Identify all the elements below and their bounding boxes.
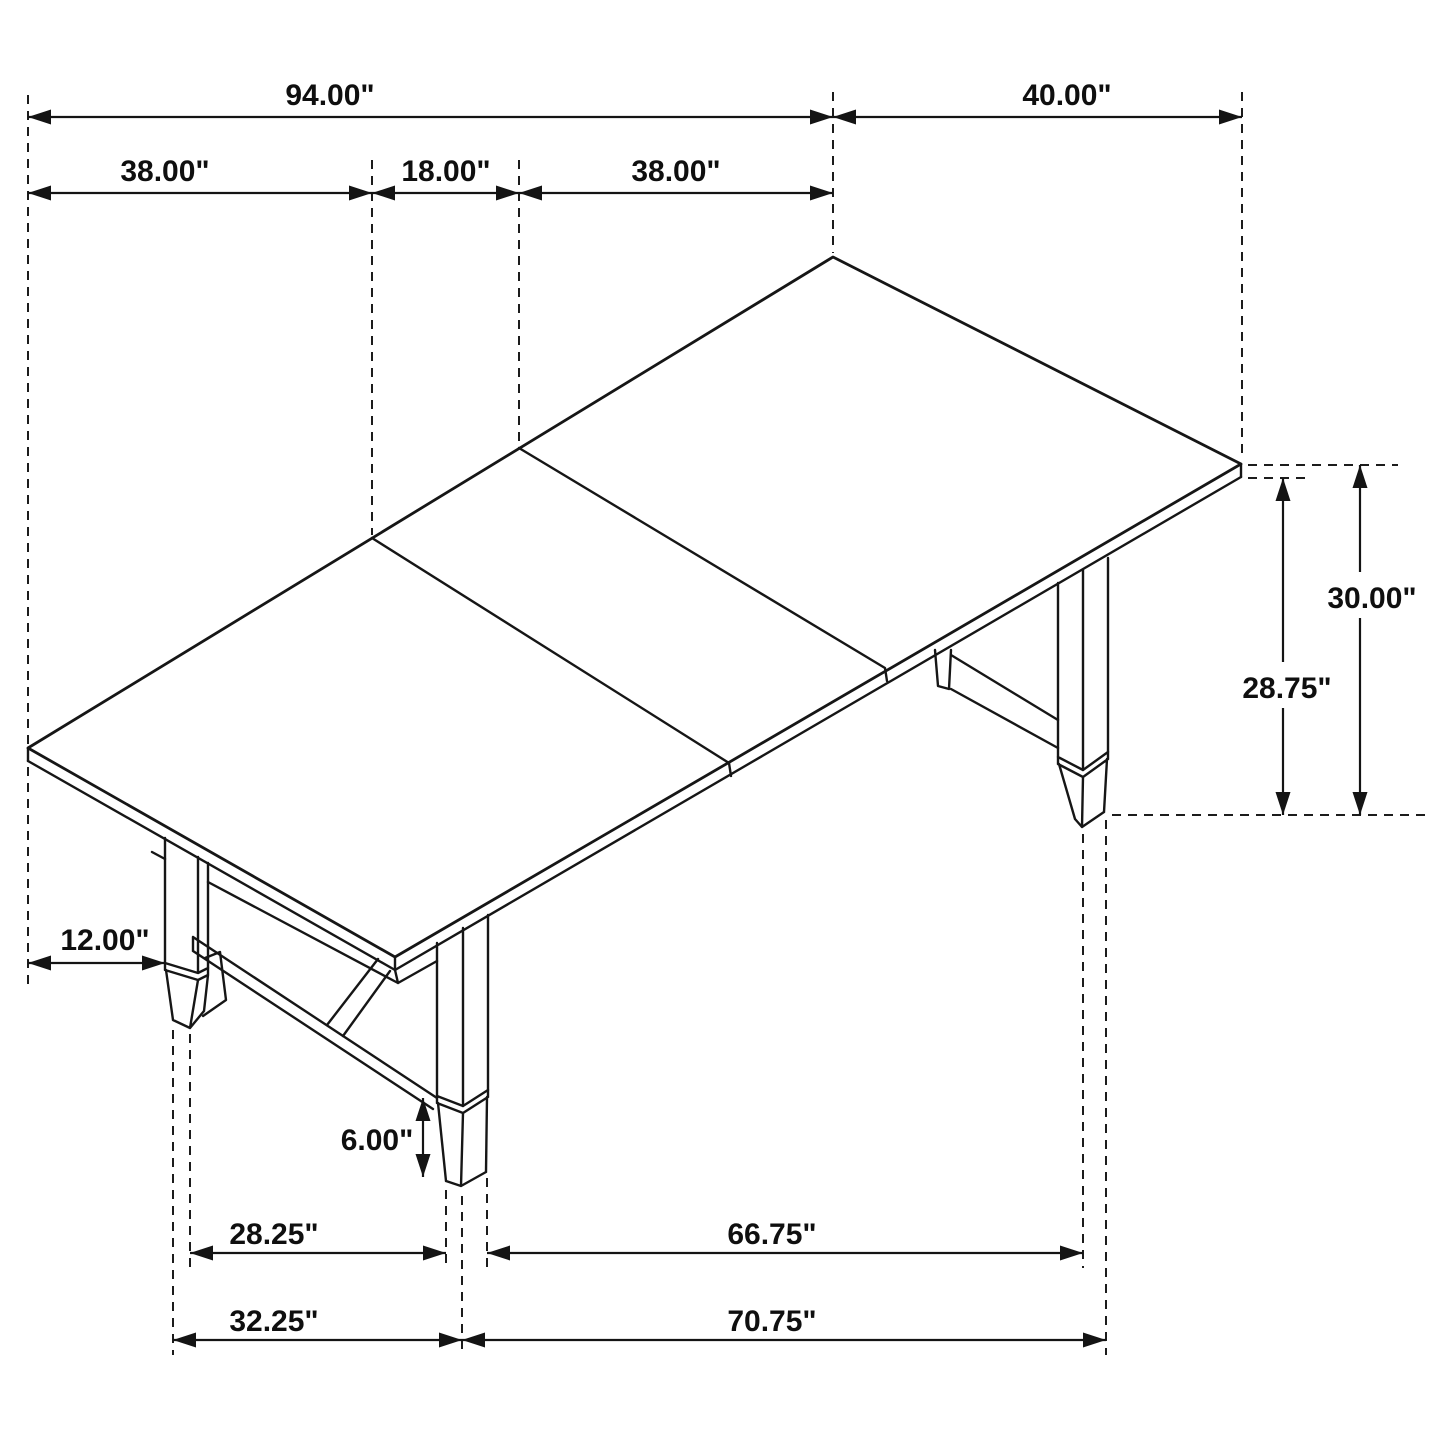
diagram-canvas: 94.00" 40.00" 38.00" 18.00" 38.00" 30.00… [0,0,1445,1445]
extension-lines [28,92,1432,1356]
dim-height-label: 30.00" [1327,582,1416,615]
dim-leg-inset-label: 12.00" [60,924,149,957]
front-corner-leg [437,915,488,1106]
dim-leg-span-long-inner-label: 66.75" [727,1218,816,1251]
leaf-seam-line-right [519,448,887,681]
diagonal-brace [327,959,390,1036]
table-dimension-diagram: 94.00" 40.00" 38.00" 18.00" 38.00" 30.00… [0,0,1445,1445]
dim-clearance-label: 28.75" [1242,672,1331,705]
right-leg [1058,558,1108,770]
dim-end-section-label: 38.00" [120,155,209,188]
dim-overall-length-label: 94.00" [285,79,374,112]
left-back-leg [165,838,208,973]
dimension-annotations: 94.00" 40.00" 38.00" 18.00" 38.00" 30.00… [28,79,1434,1340]
dim-foot-height-label: 6.00" [341,1124,414,1157]
dim-base-long-span-label: 70.75" [727,1305,816,1338]
stretcher-beam [193,937,437,1109]
dim-end-section-2-label: 38.00" [631,155,720,188]
dim-base-end-span-label: 32.25" [229,1305,318,1338]
dim-table-width-label: 40.00" [1022,79,1111,112]
right-stretcher [951,655,1058,748]
table-drawing [28,257,1241,1186]
leaf-seam-line-left [372,538,731,776]
dim-leaf-label: 18.00" [401,155,490,188]
dim-leg-span-inner-label: 28.25" [229,1218,318,1251]
right-corbel [935,650,951,689]
